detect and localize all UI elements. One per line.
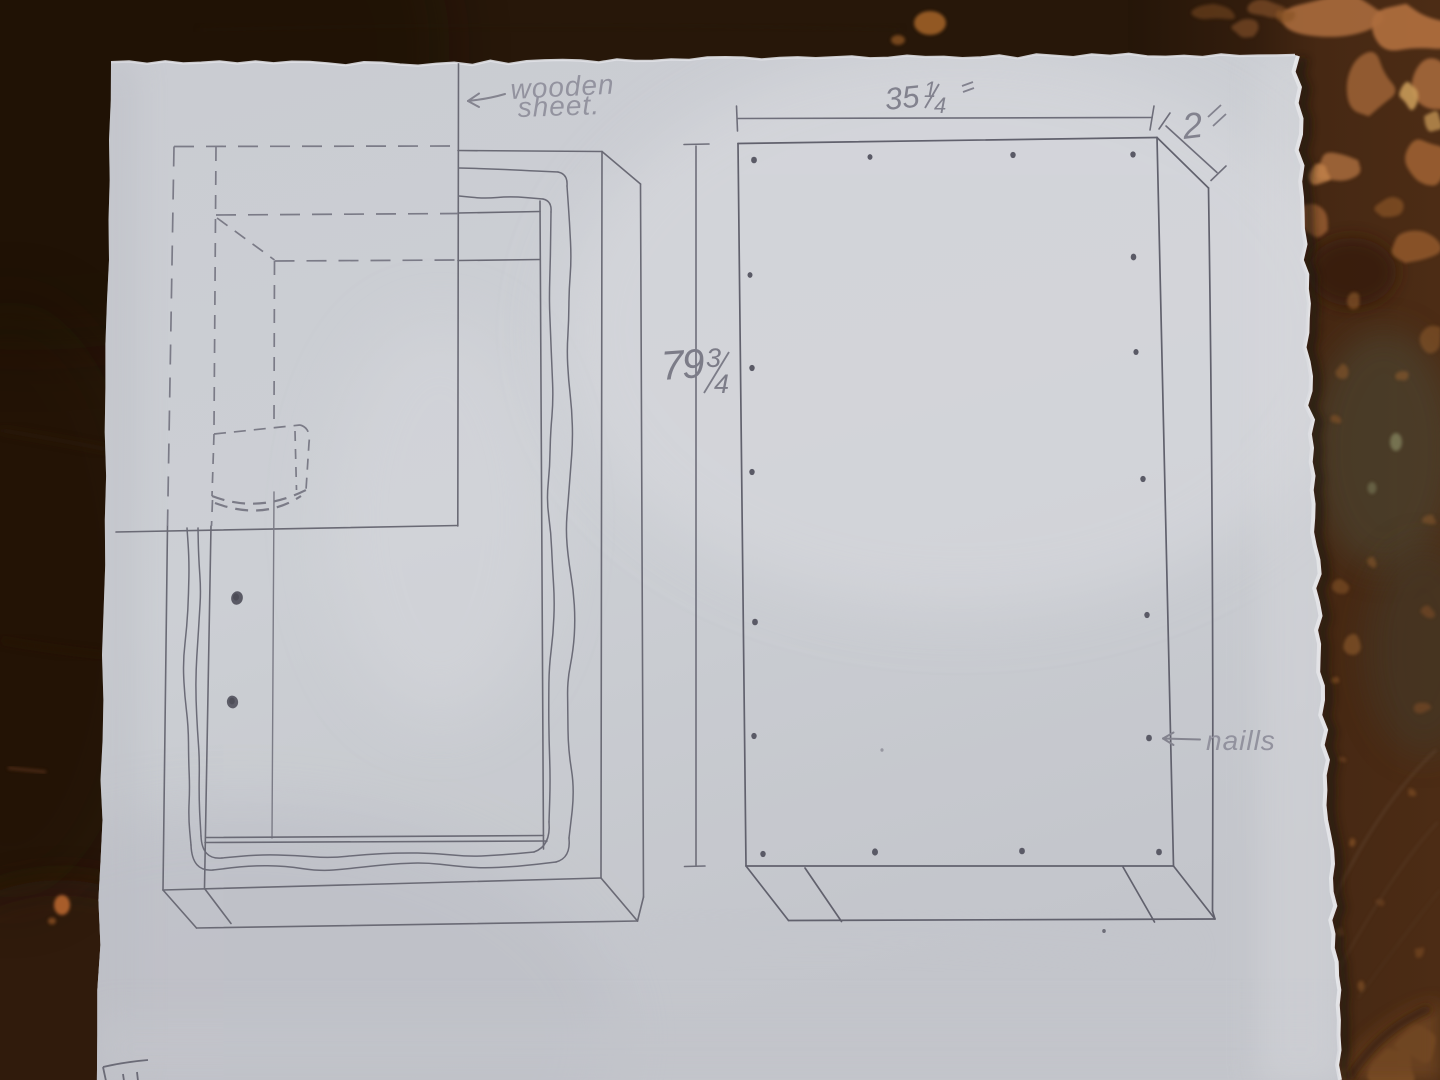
svg-text:4: 4 bbox=[934, 93, 946, 118]
svg-text:79: 79 bbox=[659, 340, 705, 389]
svg-text:35: 35 bbox=[883, 78, 922, 116]
svg-text:sheet.: sheet. bbox=[517, 89, 600, 123]
svg-text:naills: naills bbox=[1206, 725, 1276, 756]
svg-text:4: 4 bbox=[714, 369, 729, 399]
